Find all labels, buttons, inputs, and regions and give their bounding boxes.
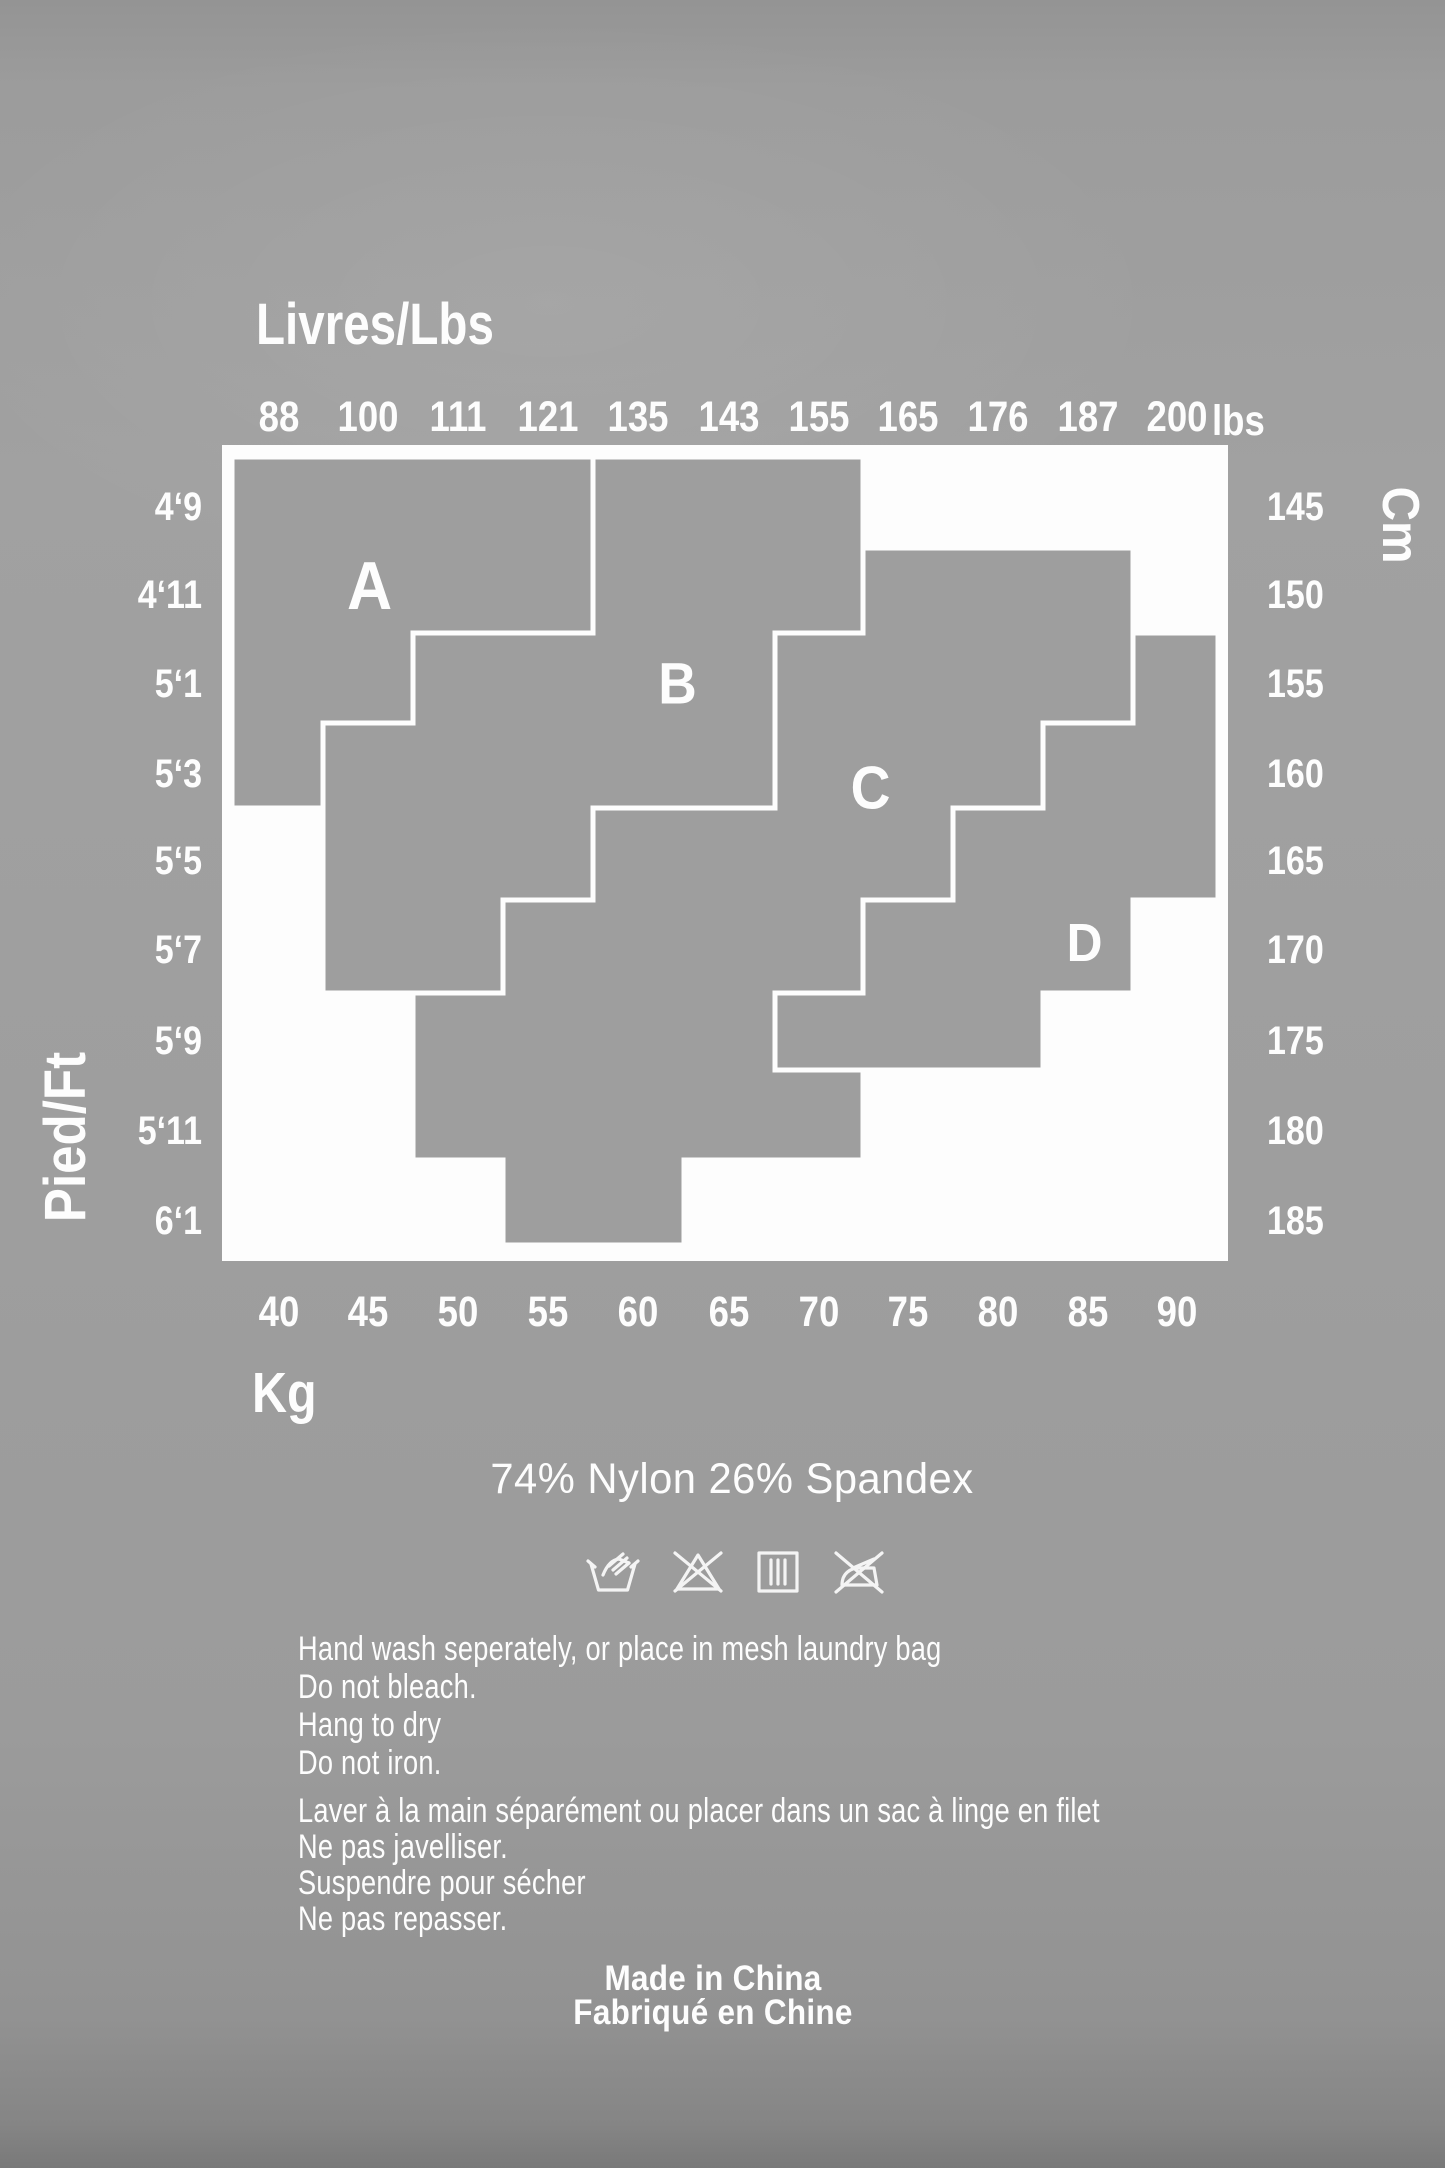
origin-line-en: Made in China [573,1962,852,1996]
region-letter-A: A [347,547,393,625]
care-en-line: Hang to dry [298,1706,942,1744]
tick-lbs-143: 143 [699,396,760,438]
care-instructions-en: Hand wash seperately, or place in mesh l… [298,1630,942,1782]
care-fr-line: Ne pas javelliser. [298,1829,1100,1865]
tick-lbs-111: 111 [430,396,487,438]
composition-text: 74% Nylon 26% Spandex [490,1455,973,1504]
care-en-line: Do not bleach. [298,1668,942,1706]
tick-kg-75: 75 [888,1291,929,1333]
tick-ft-5‘1: 5‘1 [64,663,202,705]
tick-kg-60: 60 [618,1291,659,1333]
tick-cm-155: 155 [1267,663,1324,705]
tick-cm-150: 150 [1267,574,1324,616]
label-stage: Livres/Lbs lbs Kg Pied/Ft Cm 88100111121… [0,0,1445,2168]
hand-wash-icon [583,1542,643,1602]
tick-kg-40: 40 [259,1291,300,1333]
tick-kg-80: 80 [978,1291,1019,1333]
tick-kg-90: 90 [1157,1291,1198,1333]
tick-cm-185: 185 [1267,1200,1324,1242]
region-letter-C: C [851,754,892,823]
tick-lbs-121: 121 [518,396,579,438]
tick-kg-85: 85 [1068,1291,1109,1333]
axis-unit-lbs: lbs [1212,397,1265,446]
care-fr-line: Laver à la main séparément ou placer dan… [298,1793,1100,1829]
region-letter-D: D [1067,912,1104,974]
region-letter-B: B [658,651,697,718]
care-en-line: Hand wash seperately, or place in mesh l… [298,1630,942,1668]
tick-lbs-200: 200 [1147,396,1208,438]
tick-kg-45: 45 [348,1291,389,1333]
axis-title-kg: Kg [252,1360,317,1426]
do-not-bleach-icon [668,1542,728,1602]
drip-dry-icon [748,1542,808,1602]
origin-line-fr: Fabriqué en Chine [573,1996,852,2030]
tick-cm-180: 180 [1267,1110,1324,1152]
tick-cm-145: 145 [1267,486,1324,528]
tick-kg-50: 50 [438,1291,479,1333]
axis-title-cm: Cm [1369,468,1431,582]
care-en-line: Do not iron. [298,1744,942,1782]
tick-lbs-88: 88 [259,396,300,438]
care-instructions-fr: Laver à la main séparément ou placer dan… [298,1793,1100,1937]
tick-lbs-155: 155 [789,396,850,438]
tick-lbs-135: 135 [608,396,669,438]
tick-cm-175: 175 [1267,1020,1324,1062]
origin-text: Made in China Fabriqué en Chine [573,1962,852,2030]
care-fr-line: Suspendre pour sécher [298,1865,1100,1901]
tick-lbs-165: 165 [878,396,939,438]
tick-kg-65: 65 [709,1291,750,1333]
tick-kg-55: 55 [528,1291,569,1333]
tick-cm-160: 160 [1267,753,1324,795]
axis-title-lbs: Livres/Lbs [256,291,494,358]
tick-ft-4‘9: 4‘9 [64,486,202,528]
tick-lbs-176: 176 [968,396,1029,438]
tick-cm-170: 170 [1267,929,1324,971]
care-fr-line: Ne pas repasser. [298,1901,1100,1937]
tick-lbs-187: 187 [1058,396,1119,438]
tick-ft-5‘5: 5‘5 [64,840,202,882]
tick-lbs-100: 100 [338,396,399,438]
tick-ft-5‘11: 5‘11 [64,1110,202,1152]
tick-cm-165: 165 [1267,840,1324,882]
tick-ft-6‘1: 6‘1 [64,1200,202,1242]
do-not-iron-icon [829,1542,889,1602]
tick-ft-5‘3: 5‘3 [64,753,202,795]
tick-ft-5‘7: 5‘7 [64,929,202,971]
tick-ft-4‘11: 4‘11 [64,574,202,616]
tick-ft-5‘9: 5‘9 [64,1020,202,1062]
tick-kg-70: 70 [799,1291,840,1333]
